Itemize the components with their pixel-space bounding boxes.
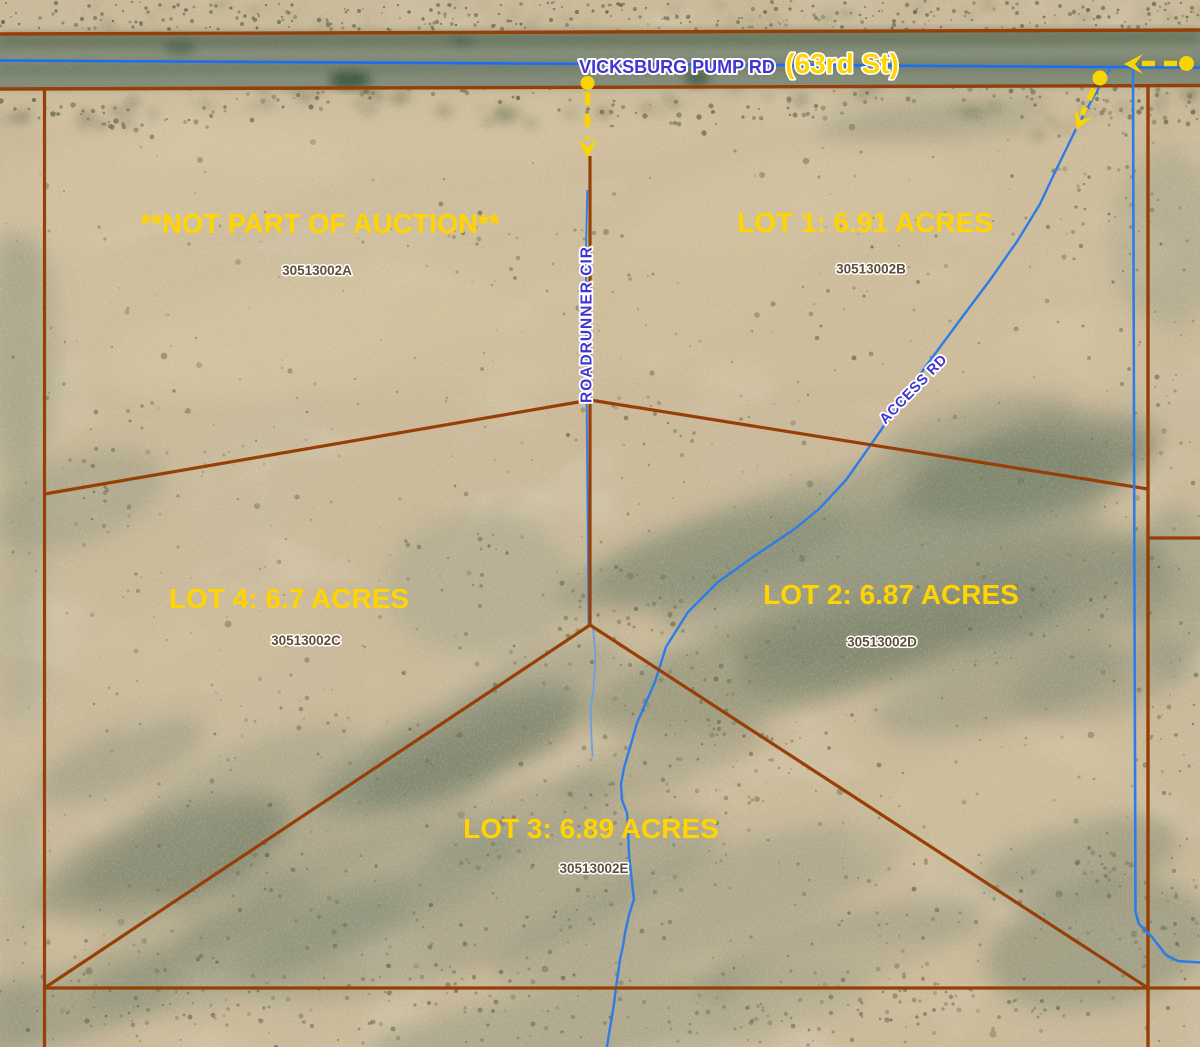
svg-text:LOT 1: 6.91 ACRES: LOT 1: 6.91 ACRES xyxy=(737,207,993,238)
svg-text:(63rd St): (63rd St) xyxy=(785,48,899,79)
svg-text:30513002D: 30513002D xyxy=(847,635,917,650)
svg-text:LOT 2: 6.87 ACRES: LOT 2: 6.87 ACRES xyxy=(763,579,1019,610)
svg-text:**NOT PART OF AUCTION**: **NOT PART OF AUCTION** xyxy=(140,208,499,239)
svg-text:LOT 3: 6.89 ACRES: LOT 3: 6.89 ACRES xyxy=(463,813,719,844)
svg-text:ROADRUNNER CIR: ROADRUNNER CIR xyxy=(579,246,596,403)
svg-text:30513002C: 30513002C xyxy=(271,633,341,648)
svg-text:30513002B: 30513002B xyxy=(836,262,906,277)
svg-text:VICKSBURG PUMP RD: VICKSBURG PUMP RD xyxy=(579,57,775,77)
svg-text:LOT 4: 6.7 ACRES: LOT 4: 6.7 ACRES xyxy=(169,583,409,614)
svg-text:30513002E: 30513002E xyxy=(559,861,628,876)
svg-text:30513002A: 30513002A xyxy=(282,263,352,278)
